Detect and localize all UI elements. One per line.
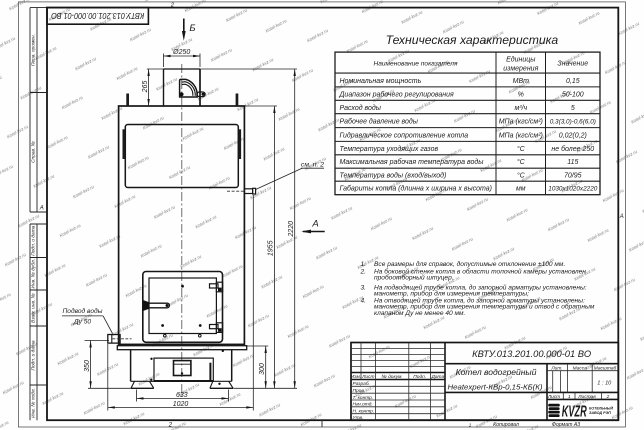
svg-text:Масштаб: Масштаб bbox=[594, 365, 617, 371]
svg-text:1955: 1955 bbox=[268, 240, 275, 256]
svg-text:Гидравлическое сопротивление к: Гидравлическое сопротивление котла bbox=[340, 131, 469, 139]
svg-text:50-100: 50-100 bbox=[562, 92, 584, 99]
svg-text:2: 2 bbox=[606, 394, 610, 400]
svg-text:Перв. примен.: Перв. примен. bbox=[31, 34, 37, 66]
svg-text:Наименование показателя: Наименование показателя bbox=[373, 61, 458, 68]
svg-text:115: 115 bbox=[567, 159, 578, 166]
svg-text:КОТЕЛЬНЫЙ: КОТЕЛЬНЫЙ bbox=[589, 406, 613, 410]
svg-text:Лит.: Лит. bbox=[550, 365, 562, 371]
svg-text:мм: мм bbox=[516, 186, 526, 193]
svg-text:Утв.: Утв. bbox=[353, 415, 364, 421]
svg-text:Значение: Значение bbox=[557, 61, 588, 68]
svg-text:Б: Б bbox=[189, 23, 195, 34]
svg-text:Т. контр.: Т. контр. bbox=[353, 395, 374, 401]
svg-text:1 : 10: 1 : 10 bbox=[597, 380, 612, 386]
svg-text:Дата: Дата bbox=[430, 374, 444, 380]
svg-text:Максимальная рабочая температу: Максимальная рабочая температура воды bbox=[340, 158, 485, 166]
svg-text:Лист: Лист bbox=[547, 394, 560, 400]
svg-text:Разраб.: Разраб. bbox=[353, 381, 370, 387]
svg-text:ЗАВОД РЭП: ЗАВОД РЭП bbox=[589, 411, 611, 415]
svg-text:1020: 1020 bbox=[173, 401, 189, 408]
svg-text:633: 633 bbox=[176, 392, 188, 399]
svg-text:КВТУ.013.201.00.000-01 ВО: КВТУ.013.201.00.000-01 ВО bbox=[51, 11, 145, 20]
svg-text:1.: 1. bbox=[361, 261, 367, 268]
svg-text:Инв. № дубл.: Инв. № дубл. bbox=[31, 259, 37, 289]
svg-text:Листов: Листов bbox=[577, 394, 596, 400]
svg-text:Расход воды: Расход воды bbox=[340, 104, 382, 112]
svg-text:Взам. инв. №: Взам. инв. № bbox=[31, 293, 37, 323]
svg-text:2: 2 bbox=[170, 3, 174, 9]
svg-text:Формат А3: Формат А3 bbox=[552, 422, 580, 428]
svg-text:Изм.: Изм. bbox=[351, 374, 361, 380]
svg-text:Ду 50: Ду 50 bbox=[73, 319, 92, 326]
svg-text:5: 5 bbox=[571, 105, 575, 112]
svg-text:Подп.: Подп. bbox=[413, 374, 426, 380]
svg-text:см. п. 2: см. п. 2 bbox=[301, 162, 324, 169]
svg-text:0,3(3,0)-0,6(6,0): 0,3(3,0)-0,6(6,0) bbox=[550, 119, 596, 126]
svg-text:300: 300 bbox=[259, 363, 266, 375]
svg-text:Температура уходящих газов: Температура уходящих газов bbox=[340, 145, 439, 153]
svg-text:Все размеры для справок, допус: Все размеры для справок, допустимые откл… bbox=[374, 260, 565, 268]
svg-text:Диапазон рабочего регулировани: Диапазон рабочего регулирования bbox=[339, 91, 455, 99]
svg-text:Номинальная мощность: Номинальная мощность bbox=[340, 78, 422, 85]
svg-text:Пров.: Пров. bbox=[353, 388, 366, 394]
svg-text:%: % bbox=[518, 92, 524, 99]
svg-text:0,02(0,2): 0,02(0,2) bbox=[559, 132, 587, 139]
svg-text:70/95: 70/95 bbox=[564, 172, 582, 179]
svg-text:Единицы: Единицы bbox=[506, 56, 536, 64]
svg-text:4.: 4. bbox=[361, 297, 367, 304]
svg-text:KVZR: KVZR bbox=[562, 404, 587, 421]
svg-text:Подп. и дата: Подп. и дата bbox=[31, 225, 37, 255]
svg-text:Температура воды (вход/выход): Температура воды (вход/выход) bbox=[340, 171, 447, 179]
svg-text:2: 2 bbox=[168, 422, 173, 428]
svg-text:2.: 2. bbox=[360, 268, 367, 275]
svg-text:Heatexpert-КВр-0,15-КБ(К): Heatexpert-КВр-0,15-КБ(К) bbox=[448, 383, 544, 392]
svg-text:Рабочее давление воды: Рабочее давление воды bbox=[340, 118, 419, 126]
svg-text:Котел водогрейный: Котел водогрейный bbox=[456, 367, 537, 377]
svg-text:3.: 3. bbox=[361, 285, 367, 292]
svg-text:А: А bbox=[39, 206, 44, 212]
svg-text:Лист: Лист bbox=[361, 374, 374, 380]
svg-text:Инв. № подл.: Инв. № подл. bbox=[31, 388, 37, 418]
svg-text:№ докум.: № докум. bbox=[382, 374, 403, 380]
svg-text:0,15: 0,15 bbox=[566, 78, 580, 85]
svg-text:клапаном Ду не менее 40 мм.: клапаном Ду не менее 40 мм. bbox=[374, 310, 466, 317]
svg-text:Подвод воды: Подвод воды bbox=[63, 307, 103, 315]
svg-text:Масса: Масса bbox=[573, 365, 588, 371]
svg-text:1: 1 bbox=[469, 422, 472, 427]
svg-text:Габариты котла (длинна х ширин: Габариты котла (длинна х ширина х высота… bbox=[340, 185, 493, 193]
svg-text:1: 1 bbox=[568, 394, 571, 400]
svg-text:не более 250: не более 250 bbox=[551, 145, 594, 153]
svg-text:°С: °С bbox=[517, 158, 526, 166]
svg-text:2220: 2220 bbox=[288, 221, 295, 238]
svg-text:Нач.отд.: Нач.отд. bbox=[353, 402, 373, 408]
svg-text:Копировал: Копировал bbox=[493, 422, 519, 428]
svg-text:пробоотборный штуцер.: пробоотборный штуцер. bbox=[374, 274, 454, 282]
svg-text:Н. контр.: Н. контр. bbox=[353, 408, 375, 414]
svg-text:Техническая характеристика: Техническая характеристика bbox=[386, 33, 559, 47]
svg-text:МПа (кгс/см²): МПа (кгс/см²) bbox=[499, 119, 543, 126]
svg-text:Подп. и дата: Подп. и дата bbox=[31, 340, 37, 370]
svg-text:А: А bbox=[619, 214, 624, 220]
svg-text:м³/ч: м³/ч bbox=[514, 105, 527, 112]
svg-text:измерения: измерения bbox=[503, 66, 538, 73]
svg-text:1030х1020х2220: 1030х1020х2220 bbox=[548, 186, 597, 193]
svg-text:А: А bbox=[311, 219, 318, 230]
svg-text:МВт: МВт bbox=[513, 78, 530, 85]
svg-text:КВТУ.013.201.00.000-01 ВО: КВТУ.013.201.00.000-01 ВО bbox=[472, 349, 591, 359]
svg-text:МПа (кгс/см²): МПа (кгс/см²) bbox=[499, 132, 543, 139]
svg-text:°С: °С bbox=[517, 145, 526, 153]
svg-text:Справ. №: Справ. № bbox=[31, 141, 37, 163]
svg-text:°С: °С bbox=[517, 171, 526, 179]
svg-text:265: 265 bbox=[142, 81, 149, 94]
svg-text:350: 350 bbox=[84, 360, 91, 372]
svg-text:Ø250: Ø250 bbox=[172, 49, 190, 56]
